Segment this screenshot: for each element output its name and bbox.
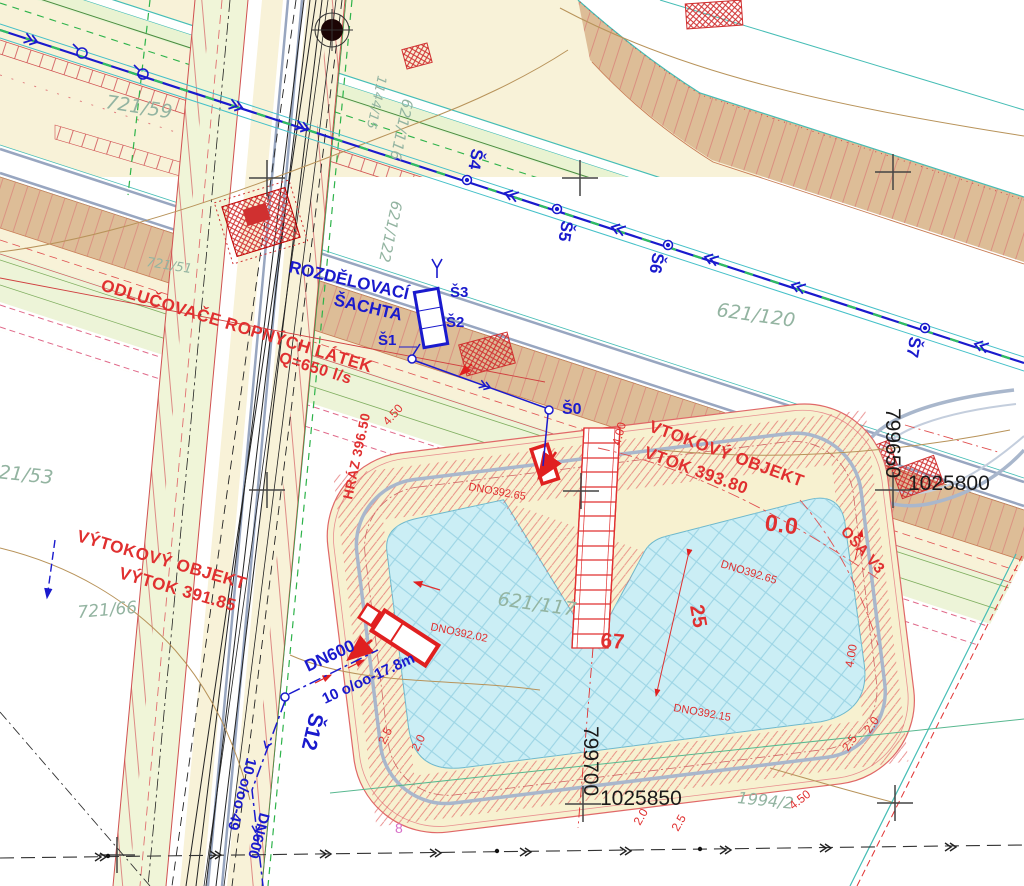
dim-25: 25 [685, 603, 711, 630]
coord-1025800: 1025800 [908, 472, 990, 495]
shaft-label-s2: Š2 [446, 313, 464, 331]
dim-label: 2.5 [668, 812, 689, 834]
retention-basin [318, 394, 924, 842]
shaft-label-s6: Š6 [645, 251, 667, 275]
shaft-label-s7: Š7 [902, 335, 924, 359]
parcel-label: 721/53 [0, 460, 54, 489]
coord-1025850: 1025850 [600, 787, 682, 810]
note-67: 67 [600, 629, 626, 654]
shaft-label-s12: Š12 [297, 711, 329, 753]
site-plan-canvas: 721/59 721/51 721/53 721/66 1144/15 621/… [0, 0, 1024, 886]
shaft-label-s1: Š1 [378, 331, 396, 349]
parcel-label: 721/66 [77, 598, 139, 623]
shaft-label-s3: Š3 [450, 283, 468, 301]
shaft-label-s0: Š0 [562, 399, 582, 418]
parcel-label: 8 [395, 820, 403, 836]
site-plan-drawing: 721/59 721/51 721/53 721/66 1144/15 621/… [0, 0, 1024, 886]
coord-799700: 799700 [579, 726, 602, 796]
coord-799650: 799650 [881, 408, 904, 478]
shaft-label-s5: Š5 [554, 219, 576, 243]
note-0-0: 0.0 [763, 509, 800, 539]
shaft-label-s4: Š4 [464, 147, 486, 171]
